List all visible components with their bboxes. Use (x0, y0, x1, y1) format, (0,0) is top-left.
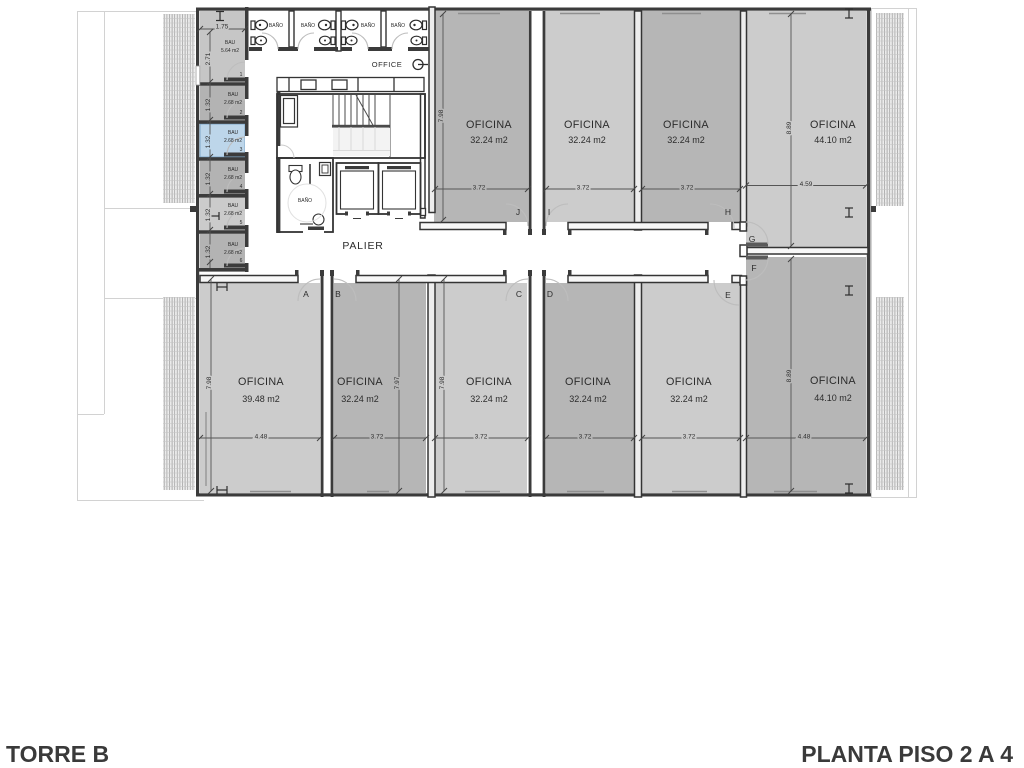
svg-text:39.48 m2: 39.48 m2 (242, 394, 280, 404)
svg-text:32.24 m2: 32.24 m2 (341, 394, 379, 404)
svg-text:7.98: 7.98 (206, 376, 213, 389)
svg-text:BAU: BAU (228, 167, 239, 173)
svg-text:1.32: 1.32 (205, 98, 212, 111)
svg-text:7.98: 7.98 (439, 376, 446, 389)
svg-text:3.72: 3.72 (579, 433, 592, 440)
svg-text:OFICINA: OFICINA (466, 376, 512, 388)
svg-text:44.10 m2: 44.10 m2 (814, 393, 852, 403)
svg-text:BAU: BAU (228, 130, 239, 136)
svg-text:3.72: 3.72 (577, 184, 590, 191)
svg-text:3.72: 3.72 (681, 184, 694, 191)
svg-text:BAÑO: BAÑO (298, 197, 312, 204)
svg-text:BAÑO: BAÑO (301, 22, 315, 29)
svg-text:D: D (547, 289, 553, 299)
svg-text:3.72: 3.72 (683, 433, 696, 440)
svg-text:OFFICE: OFFICE (372, 60, 403, 69)
svg-text:5: 5 (240, 220, 243, 226)
svg-text:OFICINA: OFICINA (810, 375, 856, 387)
svg-text:OFICINA: OFICINA (663, 119, 709, 131)
svg-text:1.32: 1.32 (205, 172, 212, 185)
svg-text:TORRE B: TORRE B (6, 741, 109, 767)
svg-text:1.32: 1.32 (205, 135, 212, 148)
svg-text:32.24 m2: 32.24 m2 (569, 394, 607, 404)
svg-text:BAÑO: BAÑO (361, 22, 375, 29)
svg-text:PLANTA PISO 2 A 4: PLANTA PISO 2 A 4 (801, 741, 1013, 767)
svg-text:32.24 m2: 32.24 m2 (470, 135, 508, 145)
svg-text:G: G (749, 234, 756, 244)
svg-text:4.48: 4.48 (798, 433, 811, 440)
svg-text:BAÑO: BAÑO (269, 22, 283, 29)
svg-text:A: A (303, 289, 309, 299)
svg-text:H: H (725, 207, 731, 217)
svg-text:6: 6 (240, 258, 243, 264)
svg-text:4.59: 4.59 (800, 181, 813, 188)
svg-text:2.68 m2: 2.68 m2 (224, 175, 242, 181)
svg-text:2.68 m2: 2.68 m2 (224, 100, 242, 106)
svg-text:1.75: 1.75 (216, 24, 229, 31)
svg-text:7.97: 7.97 (394, 376, 401, 389)
svg-text:8.89: 8.89 (786, 121, 793, 134)
svg-text:2.68 m2: 2.68 m2 (224, 138, 242, 144)
svg-text:BAU: BAU (228, 203, 239, 209)
svg-text:BAÑO: BAÑO (391, 22, 405, 29)
svg-text:E: E (725, 290, 731, 300)
svg-text:2: 2 (240, 110, 243, 116)
svg-text:OFICINA: OFICINA (565, 376, 611, 388)
svg-text:C: C (516, 289, 522, 299)
svg-text:1.32: 1.32 (205, 208, 212, 221)
svg-text:BAU: BAU (225, 40, 236, 46)
svg-text:OFICINA: OFICINA (466, 119, 512, 131)
svg-text:J: J (516, 207, 520, 217)
svg-text:OFICINA: OFICINA (810, 119, 856, 131)
svg-text:4.48: 4.48 (255, 433, 268, 440)
svg-text:1.32: 1.32 (205, 245, 212, 258)
svg-text:I: I (548, 207, 550, 217)
svg-text:4: 4 (240, 184, 243, 190)
svg-text:8.89: 8.89 (786, 369, 793, 382)
svg-text:OFICINA: OFICINA (238, 376, 284, 388)
svg-text:OFICINA: OFICINA (337, 376, 383, 388)
svg-text:PALIER: PALIER (342, 240, 383, 252)
svg-text:3.72: 3.72 (475, 433, 488, 440)
svg-text:5.64 m2: 5.64 m2 (221, 48, 239, 54)
svg-text:2.71: 2.71 (205, 52, 212, 65)
svg-text:B: B (335, 289, 341, 299)
svg-text:32.24 m2: 32.24 m2 (568, 135, 606, 145)
svg-text:OFICINA: OFICINA (666, 376, 712, 388)
svg-text:32.24 m2: 32.24 m2 (667, 135, 705, 145)
svg-text:2.68 m2: 2.68 m2 (224, 250, 242, 256)
svg-text:BAU: BAU (228, 92, 239, 98)
svg-text:3.72: 3.72 (371, 433, 384, 440)
svg-text:32.24 m2: 32.24 m2 (470, 394, 508, 404)
svg-text:3.72: 3.72 (473, 184, 486, 191)
svg-text:BAU: BAU (228, 242, 239, 248)
svg-text:44.10 m2: 44.10 m2 (814, 135, 852, 145)
svg-text:32.24 m2: 32.24 m2 (670, 394, 708, 404)
svg-text:F: F (751, 263, 756, 273)
svg-text:7.98: 7.98 (438, 109, 445, 122)
svg-text:OFICINA: OFICINA (564, 119, 610, 131)
svg-text:3: 3 (240, 147, 243, 153)
svg-text:2.68 m2: 2.68 m2 (224, 211, 242, 217)
svg-text:1: 1 (240, 72, 243, 78)
